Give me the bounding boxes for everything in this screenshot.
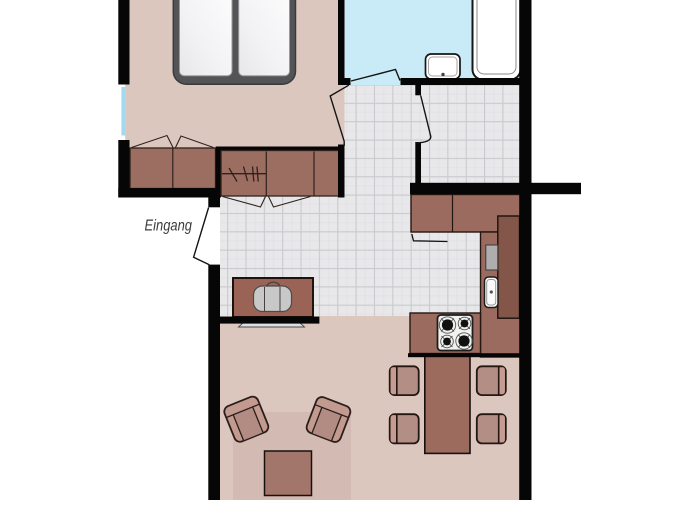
svg-text:Eingang: Eingang [145, 218, 193, 235]
